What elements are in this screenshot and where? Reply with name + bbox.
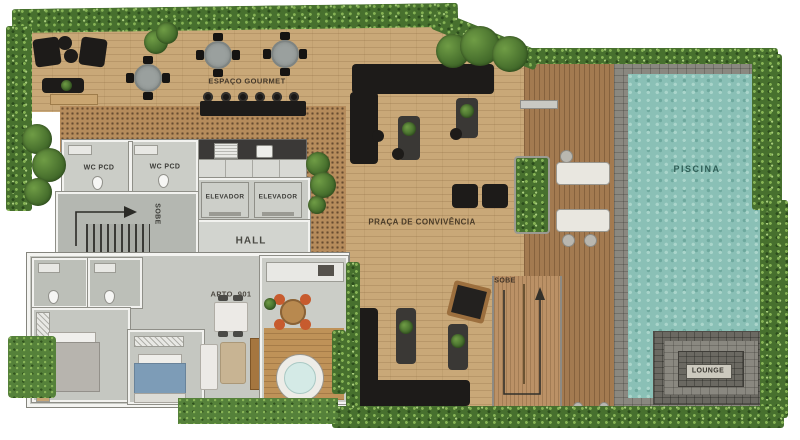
chair-icon [299,49,307,59]
apt-sofa [200,344,218,390]
round-table-icon [134,64,162,92]
wc-right-sink [134,145,158,155]
side-table-icon [64,49,78,63]
label-sobe-deck: SOBE [494,278,515,285]
terrace-chair-icon [300,294,311,305]
bed-2-blanket [134,363,186,395]
terrace-chair-icon [274,319,285,330]
label-elevador-left: ELEVADOR [206,194,245,201]
armchair-icon [78,36,108,67]
plant-by-elevators [306,152,336,214]
sun-lounger-icon [556,162,610,185]
tree-icon [436,26,536,72]
label-elevador-right: ELEVADOR [259,194,298,201]
chaise-lounge-icon [396,308,416,364]
elevator-door-left [209,212,241,216]
dining-table-apt [214,302,248,332]
grill-icon [214,143,238,159]
chair-icon [263,49,271,59]
sink-icon [256,145,273,158]
dining-set [263,32,307,76]
grass-below-apartment [178,398,338,424]
terrace-plant-icon [264,298,276,310]
chair-icon [196,50,204,60]
sectional-sofa-bottom-h [352,380,470,406]
plants-left-of-wc [22,124,74,208]
jacuzzi-water [284,362,316,394]
kitchen-cabinets [198,160,306,178]
chair-icon [162,73,170,83]
grass-bottom-left [8,336,56,398]
hedge-bottom [332,406,784,428]
lounger-side-table [584,234,597,247]
wc-divider-wall [129,142,132,192]
chair-icon [280,32,290,40]
chair-icon [232,50,240,60]
apt-sideboard [250,338,260,390]
label-lounge: LOUNGE [692,368,724,375]
label-piscina: PISCINA [673,164,720,174]
lounger-side-table [562,234,575,247]
chair-icon [213,33,223,41]
hedge-right-lower [760,200,788,418]
dining-chair-icon [233,331,243,337]
planter-terrace-right [346,262,360,408]
ottoman-icon [482,184,508,208]
label-hall: HALL [236,236,267,247]
deck-stairs-up-arrow [492,276,558,412]
dining-chair-icon [218,331,228,337]
chair-icon [280,68,290,76]
floor-plan: ESPAÇO GOURMET WC PCD WC PCD SOBE ELEVAD… [0,0,800,440]
bush-icon [144,22,180,58]
label-sobe-internal: SOBE [154,203,161,224]
chair-icon [126,73,134,83]
label-praca-de-convivencia: PRAÇA DE CONVIVÊNCIA [368,218,475,227]
bench-icon [50,94,98,105]
chair-icon [143,92,153,100]
ottoman-icon [452,184,478,208]
planter-praca-left [332,330,346,394]
deck-bench-icon [520,100,558,109]
label-apto-901: APTO. 901 [211,290,252,299]
elevator-door-right [262,212,294,216]
hedge-right-upper [752,54,782,210]
chaise-plant-icon [460,104,474,118]
stair-up-arrow [62,198,146,252]
bar-counter [200,101,306,116]
apt-rug [220,342,246,384]
bedroom-2-wardrobe [134,336,184,347]
side-table-icon [58,36,72,50]
hedge-pool-top [520,48,778,64]
sun-lounger-icon [556,209,610,232]
dining-set [196,33,240,77]
side-table-icon [372,130,384,142]
round-table-icon [204,41,232,69]
chaise-plant-icon [402,122,416,136]
round-table-icon [271,40,299,68]
deck-planter [516,158,548,232]
terrace-chair-icon [300,319,311,330]
sectional-sofa-top-v [350,92,378,164]
dining-set [126,56,170,100]
bath-2-sink [94,263,116,273]
side-table-icon [450,128,462,140]
chaise-plant-icon [399,320,413,334]
chaise-plant-icon [451,334,465,348]
label-wc-pcd-left: WC PCD [84,165,115,172]
side-table-icon [392,148,404,160]
terrace-cooktop [318,265,334,276]
label-wc-pcd-right: WC PCD [150,164,181,171]
coffee-table-plant-icon [61,80,72,91]
label-espaco-gourmet: ESPAÇO GOURMET [208,77,285,86]
bath-1-sink [38,263,60,273]
